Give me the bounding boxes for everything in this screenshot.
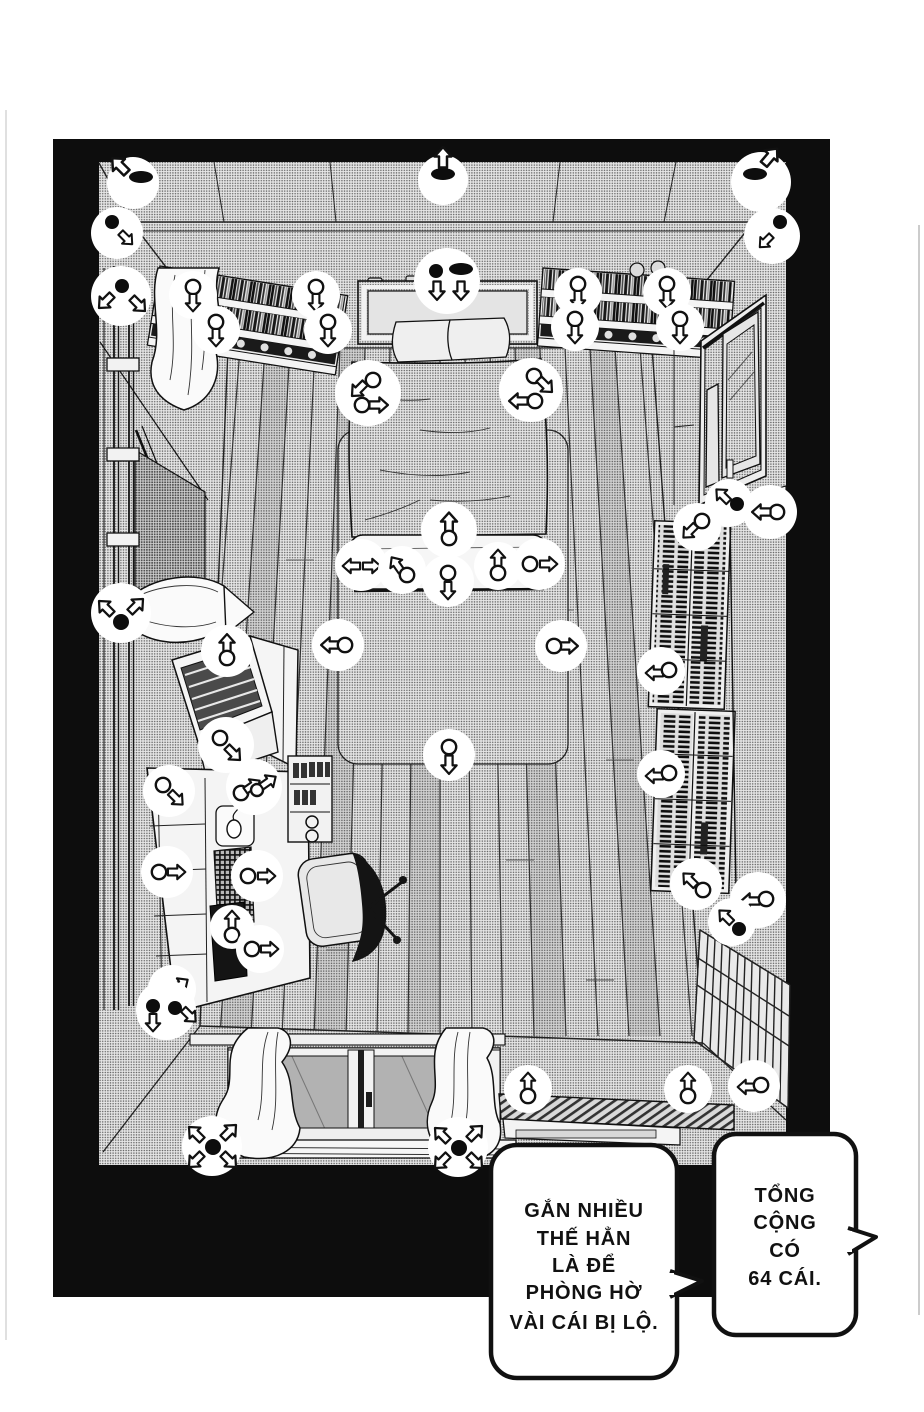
svg-text:VÀI CÁI BỊ LỘ.: VÀI CÁI BỊ LỘ. bbox=[510, 1310, 659, 1334]
svg-text:CÓ: CÓ bbox=[769, 1238, 801, 1262]
svg-text:PHÒNG HỜ: PHÒNG HỜ bbox=[526, 1280, 643, 1304]
svg-text:TỔNG: TỔNG bbox=[755, 1183, 816, 1207]
svg-text:LÀ ĐỂ: LÀ ĐỂ bbox=[552, 1254, 616, 1277]
svg-text:64 CÁI.: 64 CÁI. bbox=[748, 1267, 821, 1290]
svg-text:THẾ HẲN: THẾ HẲN bbox=[537, 1227, 632, 1250]
svg-text:CỘNG: CỘNG bbox=[753, 1210, 816, 1234]
svg-text:GẮN NHIỀU: GẮN NHIỀU bbox=[524, 1198, 643, 1222]
